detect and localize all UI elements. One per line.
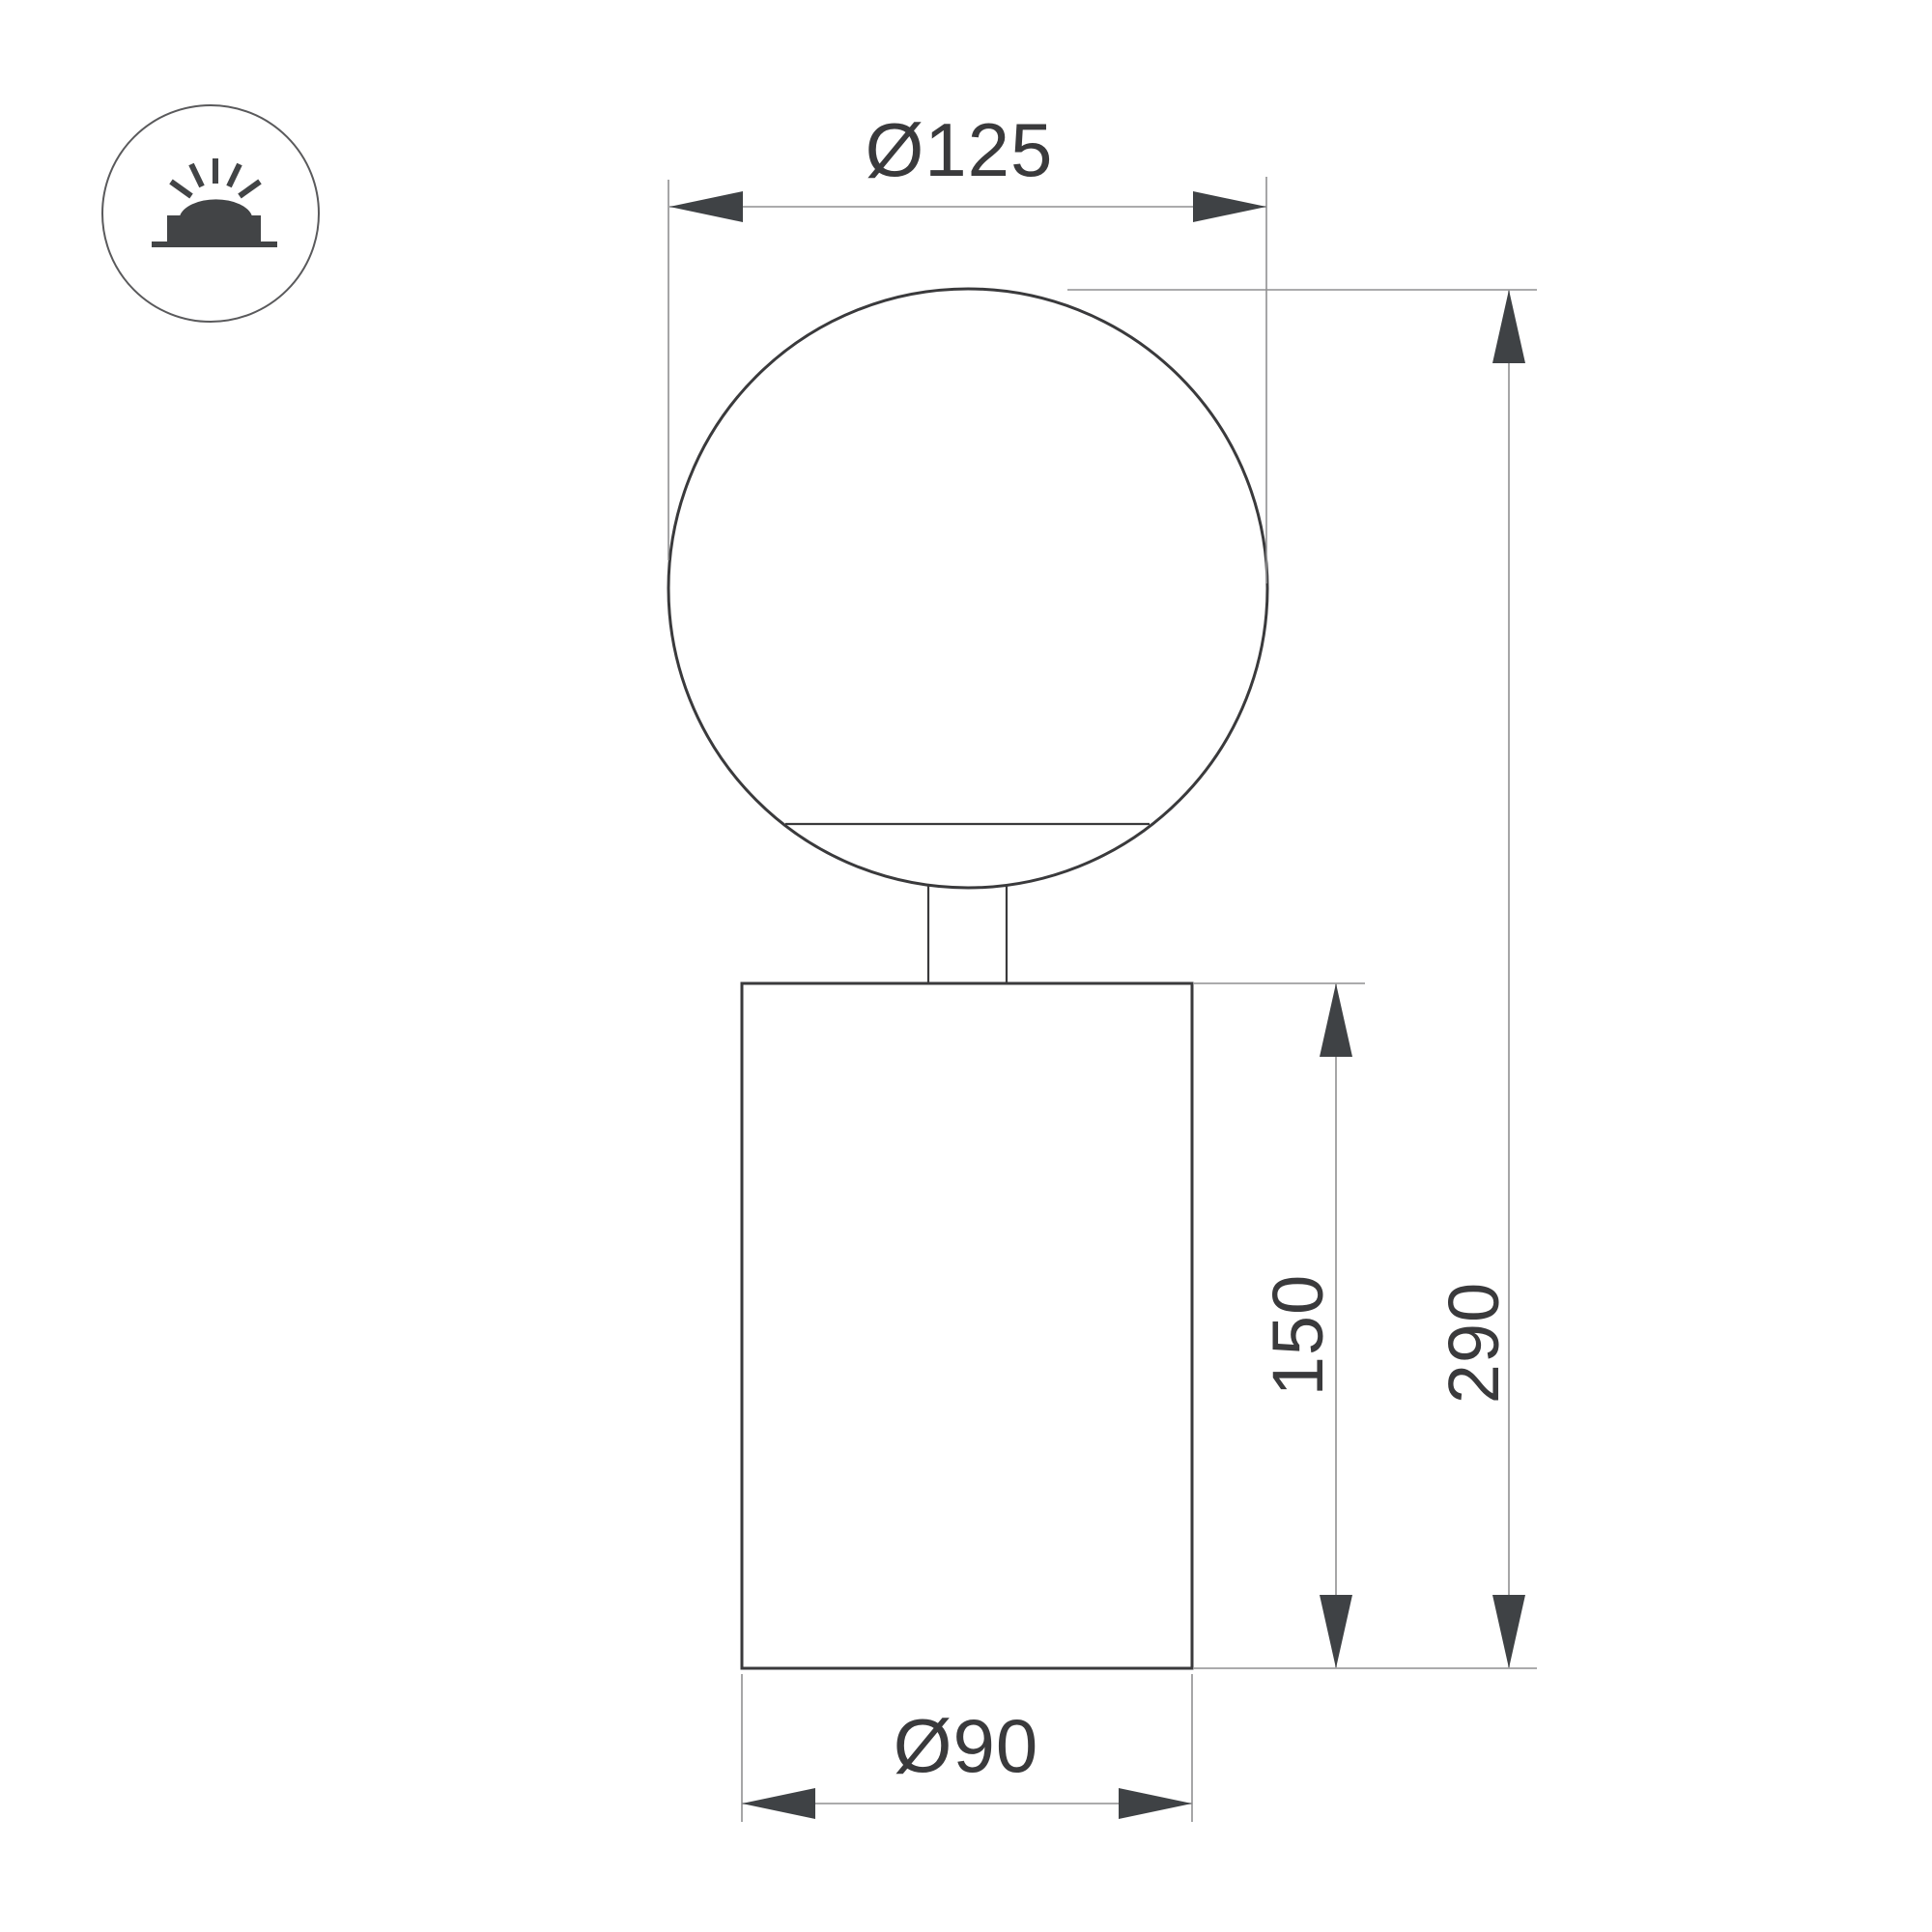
body-height-label: 150 [1258,1274,1338,1396]
light-ray-icon [240,182,260,196]
light-ray-icon [171,182,191,196]
lamp-body-icon [167,215,261,241]
base-cylinder-outline [742,983,1192,1668]
light-ray-icon [229,164,240,186]
lamp-dome-icon [180,199,252,216]
arrow-up-icon [1320,983,1352,1057]
lamp-dimension-drawing: Ø125 290 150 Ø90 [0,0,1932,1932]
lamp-flange-icon [152,241,277,247]
dimension-globe-diameter: Ø125 [668,107,1266,583]
lamp-outline [668,289,1267,1668]
arrow-right-icon [1119,1788,1192,1819]
body-diameter-label: Ø90 [894,1703,1038,1788]
arrow-down-icon [1492,1595,1525,1668]
arrow-down-icon [1320,1595,1352,1668]
surface-mounted-luminaire-icon [152,158,277,247]
dimension-body-diameter: Ø90 [742,1674,1192,1822]
arrow-up-icon [1492,290,1525,363]
globe-outline [668,289,1267,888]
product-type-icon [102,105,319,322]
light-ray-icon [191,164,202,186]
dimension-overall-height: 290 [1067,290,1537,1668]
overall-height-label: 290 [1434,1282,1514,1404]
globe-diameter-label: Ø125 [866,107,1054,192]
arrow-right-icon [1193,191,1266,222]
arrow-left-icon [669,191,743,222]
dimension-body-height: 150 [1194,983,1365,1668]
arrow-left-icon [742,1788,815,1819]
